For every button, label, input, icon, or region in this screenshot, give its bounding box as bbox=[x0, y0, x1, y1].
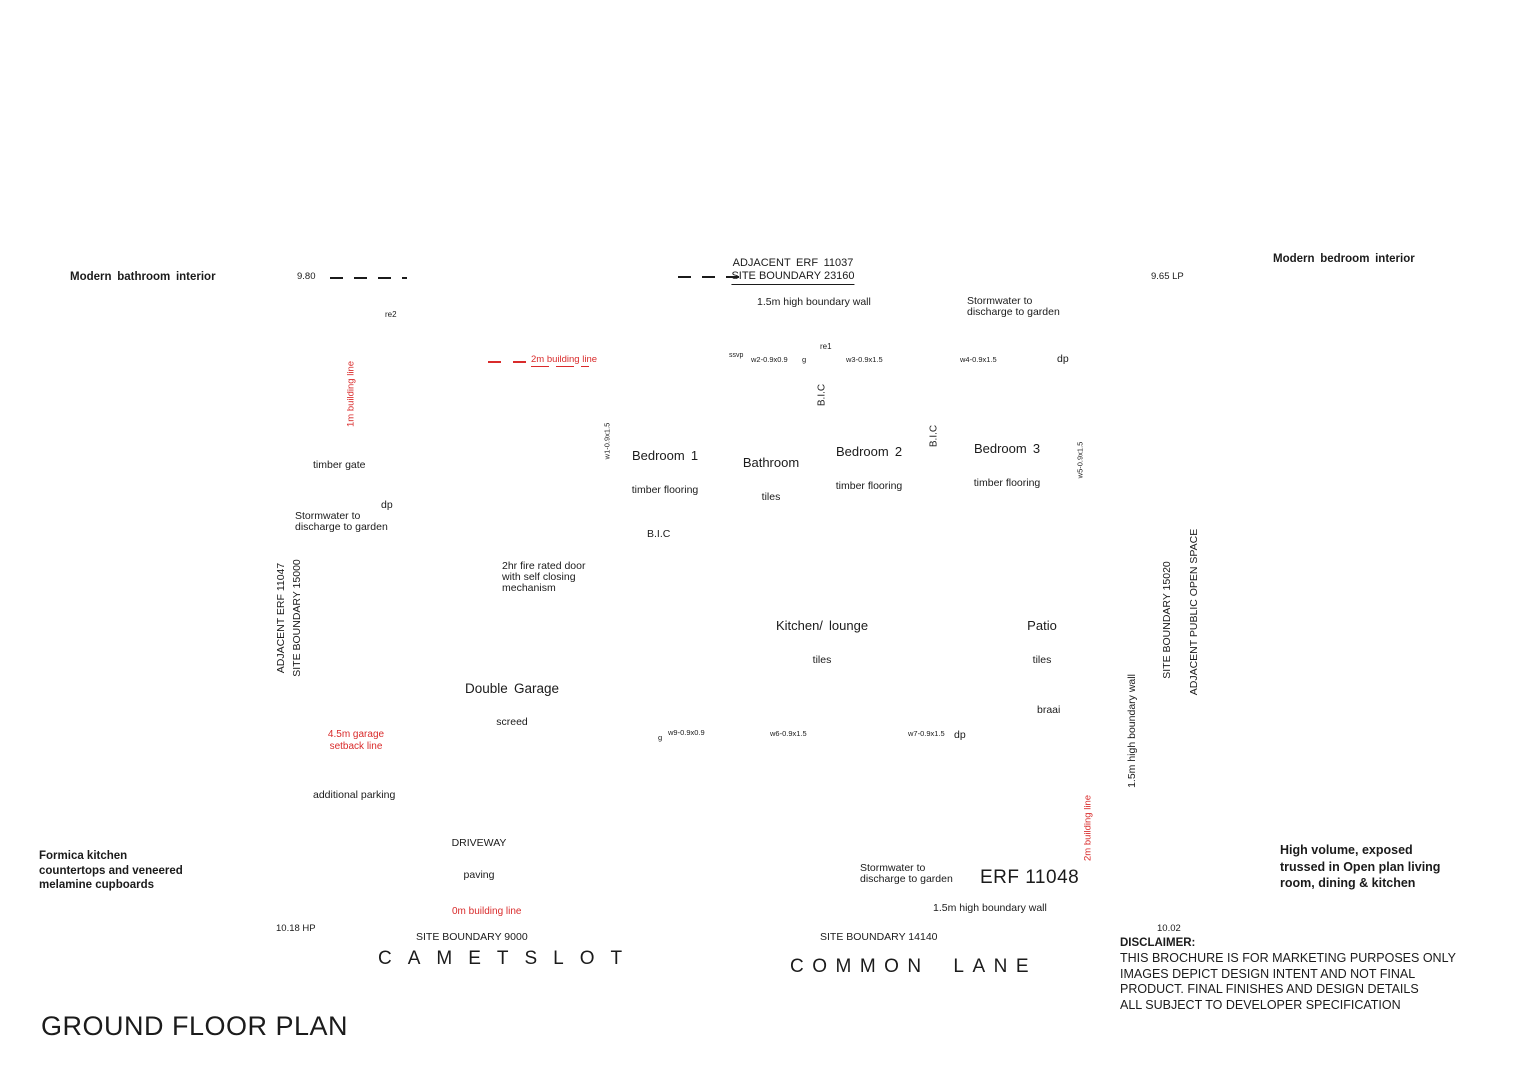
level-top-right: 9.65 LP bbox=[1151, 272, 1184, 283]
window-w3: w3-0.9x1.5 bbox=[846, 356, 883, 365]
boundary-wall-top: 1.5m high boundary wall bbox=[757, 296, 871, 308]
room-finish: tiles bbox=[743, 491, 799, 503]
dashed-line-top-boundary bbox=[678, 276, 742, 278]
level-bottom-left: 10.18 HP bbox=[276, 924, 316, 935]
bic-cupboard-3: B.I.C bbox=[647, 528, 670, 540]
downpipe-bottom: dp bbox=[954, 729, 966, 741]
window-w2: w2-0.9x0.9 bbox=[751, 356, 788, 365]
room-name: DRIVEWAY bbox=[452, 837, 507, 849]
stormwater-note-bottom: Stormwater to discharge to garden bbox=[860, 863, 953, 885]
boundary-wall-right: 1.5m high boundary wall bbox=[1126, 674, 1138, 788]
adjacent-erf-left: ADJACENT ERF 11047 bbox=[275, 563, 287, 674]
adjacent-open-space: ADJACENT PUBLIC OPEN SPACE bbox=[1188, 529, 1200, 696]
re1-marker: re1 bbox=[820, 342, 832, 351]
re2-marker: re2 bbox=[385, 310, 397, 319]
page-title: GROUND FLOOR PLAN bbox=[41, 1011, 348, 1042]
downpipe-top: dp bbox=[1057, 353, 1069, 365]
window-w4: w4-0.9x1.5 bbox=[960, 356, 997, 365]
boundary-wall-bottom: 1.5m high boundary wall bbox=[933, 902, 1047, 914]
room-finish: tiles bbox=[776, 654, 868, 666]
site-boundary-left: SITE BOUNDARY 15000 bbox=[291, 559, 303, 677]
level-top-left: 9.80 bbox=[297, 272, 316, 283]
gully-marker-bottom: g bbox=[658, 734, 662, 743]
site-boundary-bottom-left: SITE BOUNDARY 9000 bbox=[416, 931, 528, 943]
disclaimer-body: THIS BROCHURE IS FOR MARKETING PURPOSES … bbox=[1120, 951, 1456, 1013]
street-common-lane: COMMON LANE bbox=[790, 956, 1037, 978]
caption-modern-bathroom: Modern bathroom interior bbox=[70, 271, 216, 284]
site-boundary-top: SITE BOUNDARY 23160 bbox=[731, 270, 854, 285]
garage-setback-line: 4.5m garage setback line bbox=[328, 729, 384, 753]
timber-gate-note: timber gate bbox=[313, 459, 366, 471]
room-name: Double Garage bbox=[465, 681, 559, 697]
floor-plan: Modern bathroom interior 9.80 re2 1m bui… bbox=[0, 0, 1528, 1080]
room-bathroom: Bathroom tiles bbox=[743, 438, 799, 521]
additional-parking-note: additional parking bbox=[313, 789, 395, 801]
window-w5: w5-0.9x1.5 bbox=[1077, 442, 1086, 479]
street-cametslot: CAMETSLOT bbox=[378, 948, 638, 970]
bic-cupboard-1: B.I.C bbox=[816, 384, 828, 406]
red-dashed-line bbox=[488, 361, 528, 363]
room-name: Bedroom 3 bbox=[974, 442, 1041, 457]
window-w7: w7-0.9x1.5 bbox=[908, 730, 945, 739]
building-line-0m: 0m building line bbox=[452, 906, 522, 918]
stormwater-note-left: Stormwater to discharge to garden bbox=[295, 511, 388, 533]
red-dashed-underline bbox=[531, 366, 589, 367]
level-bottom-right: 10.02 bbox=[1157, 924, 1181, 935]
room-finish: timber flooring bbox=[974, 477, 1041, 489]
room-finish: paving bbox=[452, 869, 507, 881]
window-w1: w1-0.9x1.5 bbox=[604, 423, 613, 460]
building-line-2m-right: 2m building line bbox=[1084, 795, 1095, 861]
downpipe-left: dp bbox=[381, 499, 393, 511]
room-bedroom3: Bedroom 3 timber flooring bbox=[974, 424, 1041, 507]
bic-cupboard-2: B.I.C bbox=[928, 425, 940, 447]
adjacent-erf-top: ADJACENT ERF 11037 bbox=[733, 257, 854, 270]
stormwater-note-top: Stormwater to discharge to garden bbox=[967, 296, 1060, 318]
erf-number: ERF 11048 bbox=[980, 867, 1079, 889]
caption-formica-kitchen: Formica kitchen countertops and veneered… bbox=[39, 849, 183, 893]
site-boundary-right: SITE BOUNDARY 15020 bbox=[1161, 561, 1173, 679]
room-finish: timber flooring bbox=[836, 480, 903, 492]
room-finish: screed bbox=[465, 716, 559, 728]
room-name: Bathroom bbox=[743, 456, 799, 471]
room-driveway: DRIVEWAY paving bbox=[452, 819, 507, 899]
caption-modern-bedroom: Modern bedroom interior bbox=[1273, 253, 1415, 266]
ssvp-marker: ssvp bbox=[729, 352, 743, 360]
room-name: Bedroom 2 bbox=[836, 445, 903, 460]
window-w9: w9-0.9x0.9 bbox=[668, 729, 705, 738]
room-bedroom1: Bedroom 1 timber flooring bbox=[632, 431, 699, 514]
room-name: Bedroom 1 bbox=[632, 449, 699, 464]
site-boundary-bottom-right: SITE BOUNDARY 14140 bbox=[820, 931, 938, 943]
room-patio: Patio tiles bbox=[1027, 601, 1057, 684]
gully-marker-top: g bbox=[802, 356, 806, 365]
room-name: Patio bbox=[1027, 619, 1057, 634]
room-name: Kitchen/ lounge bbox=[776, 619, 868, 634]
room-kitchen-lounge: Kitchen/ lounge tiles bbox=[776, 601, 868, 684]
fire-door-note: 2hr fire rated door with self closing me… bbox=[502, 561, 585, 594]
building-line-2m-top: 2m building line bbox=[531, 355, 597, 366]
room-finish: timber flooring bbox=[632, 484, 699, 496]
dashed-line-top-left bbox=[330, 277, 407, 279]
braai-note: braai bbox=[1037, 704, 1060, 716]
window-w6: w6-0.9x1.5 bbox=[770, 730, 807, 739]
room-bedroom2: Bedroom 2 timber flooring bbox=[836, 427, 903, 510]
building-line-1m: 1m building line bbox=[347, 361, 358, 427]
room-double-garage: Double Garage screed bbox=[465, 663, 559, 747]
caption-high-volume: High volume, exposed trussed in Open pla… bbox=[1280, 842, 1440, 892]
disclaimer-heading: DISCLAIMER: bbox=[1120, 937, 1195, 950]
room-finish: tiles bbox=[1027, 654, 1057, 666]
